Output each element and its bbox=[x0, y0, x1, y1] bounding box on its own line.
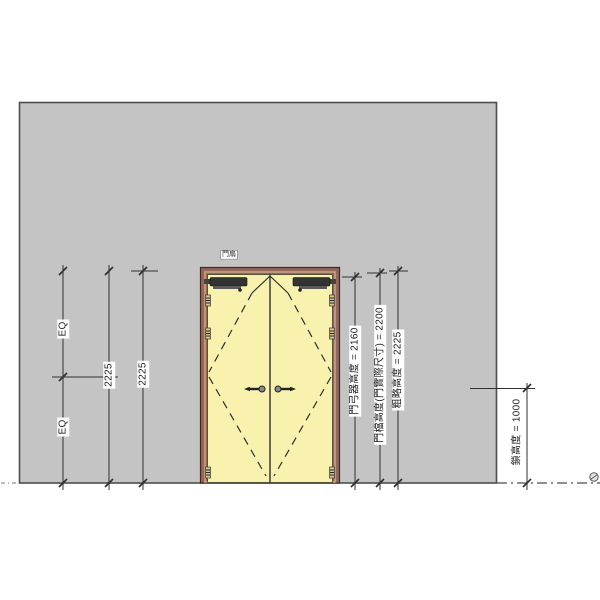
door-elevation-drawing: 門扇 EQ EQ 2225 2225 門弓器高度 = 2160 門檔高度(門實際… bbox=[0, 0, 600, 600]
dim-label-actual-height[interactable]: 門檔高度(門實際尺寸) = 2200 bbox=[374, 305, 386, 445]
door-tag[interactable]: 門扇 bbox=[220, 250, 238, 260]
dim-label-overall-1[interactable]: 2225 bbox=[103, 361, 115, 388]
level-head-icon bbox=[590, 473, 598, 481]
dim-label-lock-height[interactable]: 鎖高度 = 1000 bbox=[511, 397, 523, 468]
dim-label-overall-2[interactable]: 2225 bbox=[137, 360, 149, 387]
double-door[interactable] bbox=[201, 268, 340, 484]
dim-label-rough-height[interactable]: 粗略高度 = 2225 bbox=[392, 330, 404, 411]
dim-label-closer-height[interactable]: 門弓器高度 = 2160 bbox=[349, 325, 361, 416]
dim-label-eq-bottom[interactable]: EQ bbox=[57, 417, 69, 436]
dim-label-eq-top[interactable]: EQ bbox=[57, 319, 69, 338]
elevation-geometry bbox=[0, 0, 600, 600]
